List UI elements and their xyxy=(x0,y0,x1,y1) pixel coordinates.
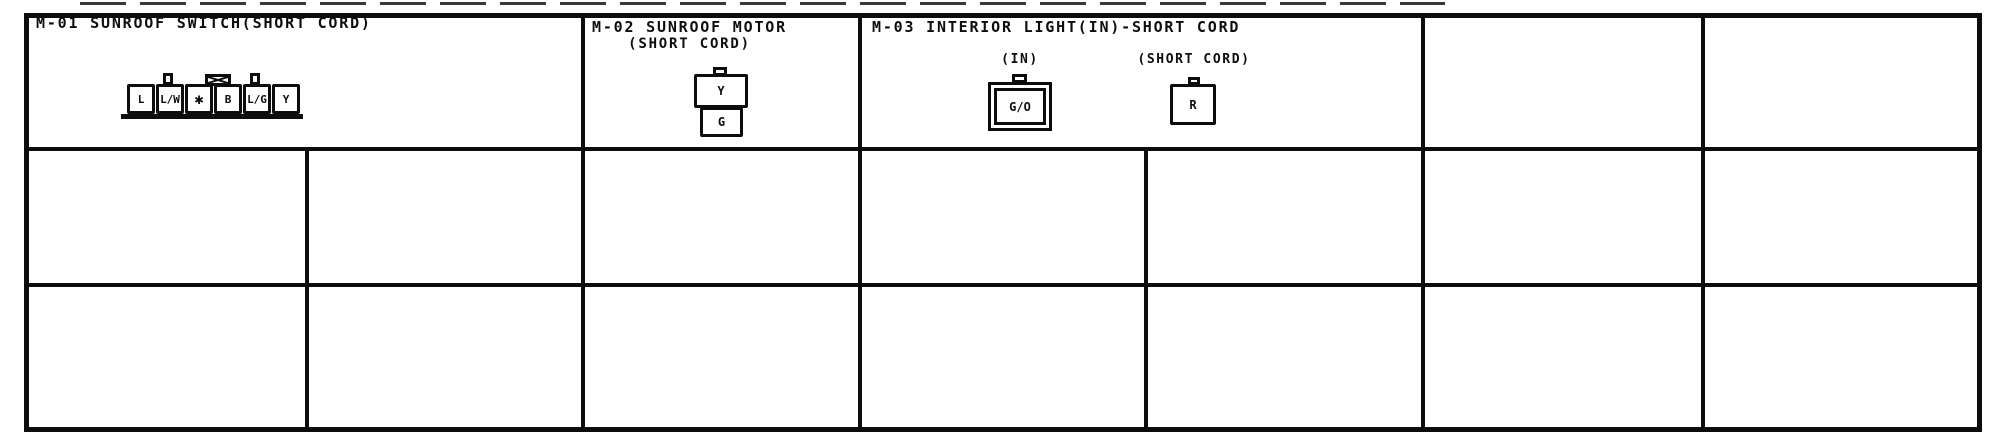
m02-subtitle: (SHORT CORD) xyxy=(592,36,787,52)
m01-pin-1: L xyxy=(127,84,155,114)
m01-pin-4: B xyxy=(214,84,242,114)
m01-pin-3: ✱ xyxy=(185,84,213,114)
column-divider-m02-m03 xyxy=(858,13,862,432)
scan-remnant-line xyxy=(80,2,1445,5)
m03-title: M-03 INTERIOR LIGHT(IN)-SHORT CORD xyxy=(872,19,1240,36)
m01-pin-6: Y xyxy=(272,84,300,114)
table-frame xyxy=(24,13,1982,432)
m03-shortcord-pin: R xyxy=(1170,84,1216,125)
m02-pin-top: Y xyxy=(694,74,748,108)
row-divider-1 xyxy=(24,147,1982,151)
connector-chart-page: M-01 SUNROOF SWITCH(SHORT CORD) L L/W ✱ … xyxy=(0,0,2002,448)
m01-pin-2: L/W xyxy=(156,84,184,114)
column-divider-col4-col5 xyxy=(1701,13,1705,432)
m01-connector: L L/W ✱ B L/G Y xyxy=(127,84,300,114)
m03-shortcord-label: (SHORT CORD) xyxy=(1104,52,1284,67)
m01-title: M-01 SUNROOF SWITCH(SHORT CORD) xyxy=(36,15,372,32)
column-divider-m01-m02 xyxy=(581,13,585,432)
m02-pin-bottom: G xyxy=(700,107,743,137)
subcolumn-divider-m03 xyxy=(1144,147,1148,432)
m01-connector-base xyxy=(121,114,303,119)
m01-pin-5: L/G xyxy=(243,84,271,114)
m02-title: M-02 SUNROOF MOTOR xyxy=(592,19,787,36)
column-divider-m03-col4 xyxy=(1421,13,1425,432)
subcolumn-divider-m01 xyxy=(305,147,309,432)
m03-in-pin: G/O xyxy=(994,88,1046,125)
m03-in-connector: G/O xyxy=(988,82,1052,131)
m03-in-label: (IN) xyxy=(980,52,1060,67)
row-divider-2 xyxy=(24,283,1982,287)
